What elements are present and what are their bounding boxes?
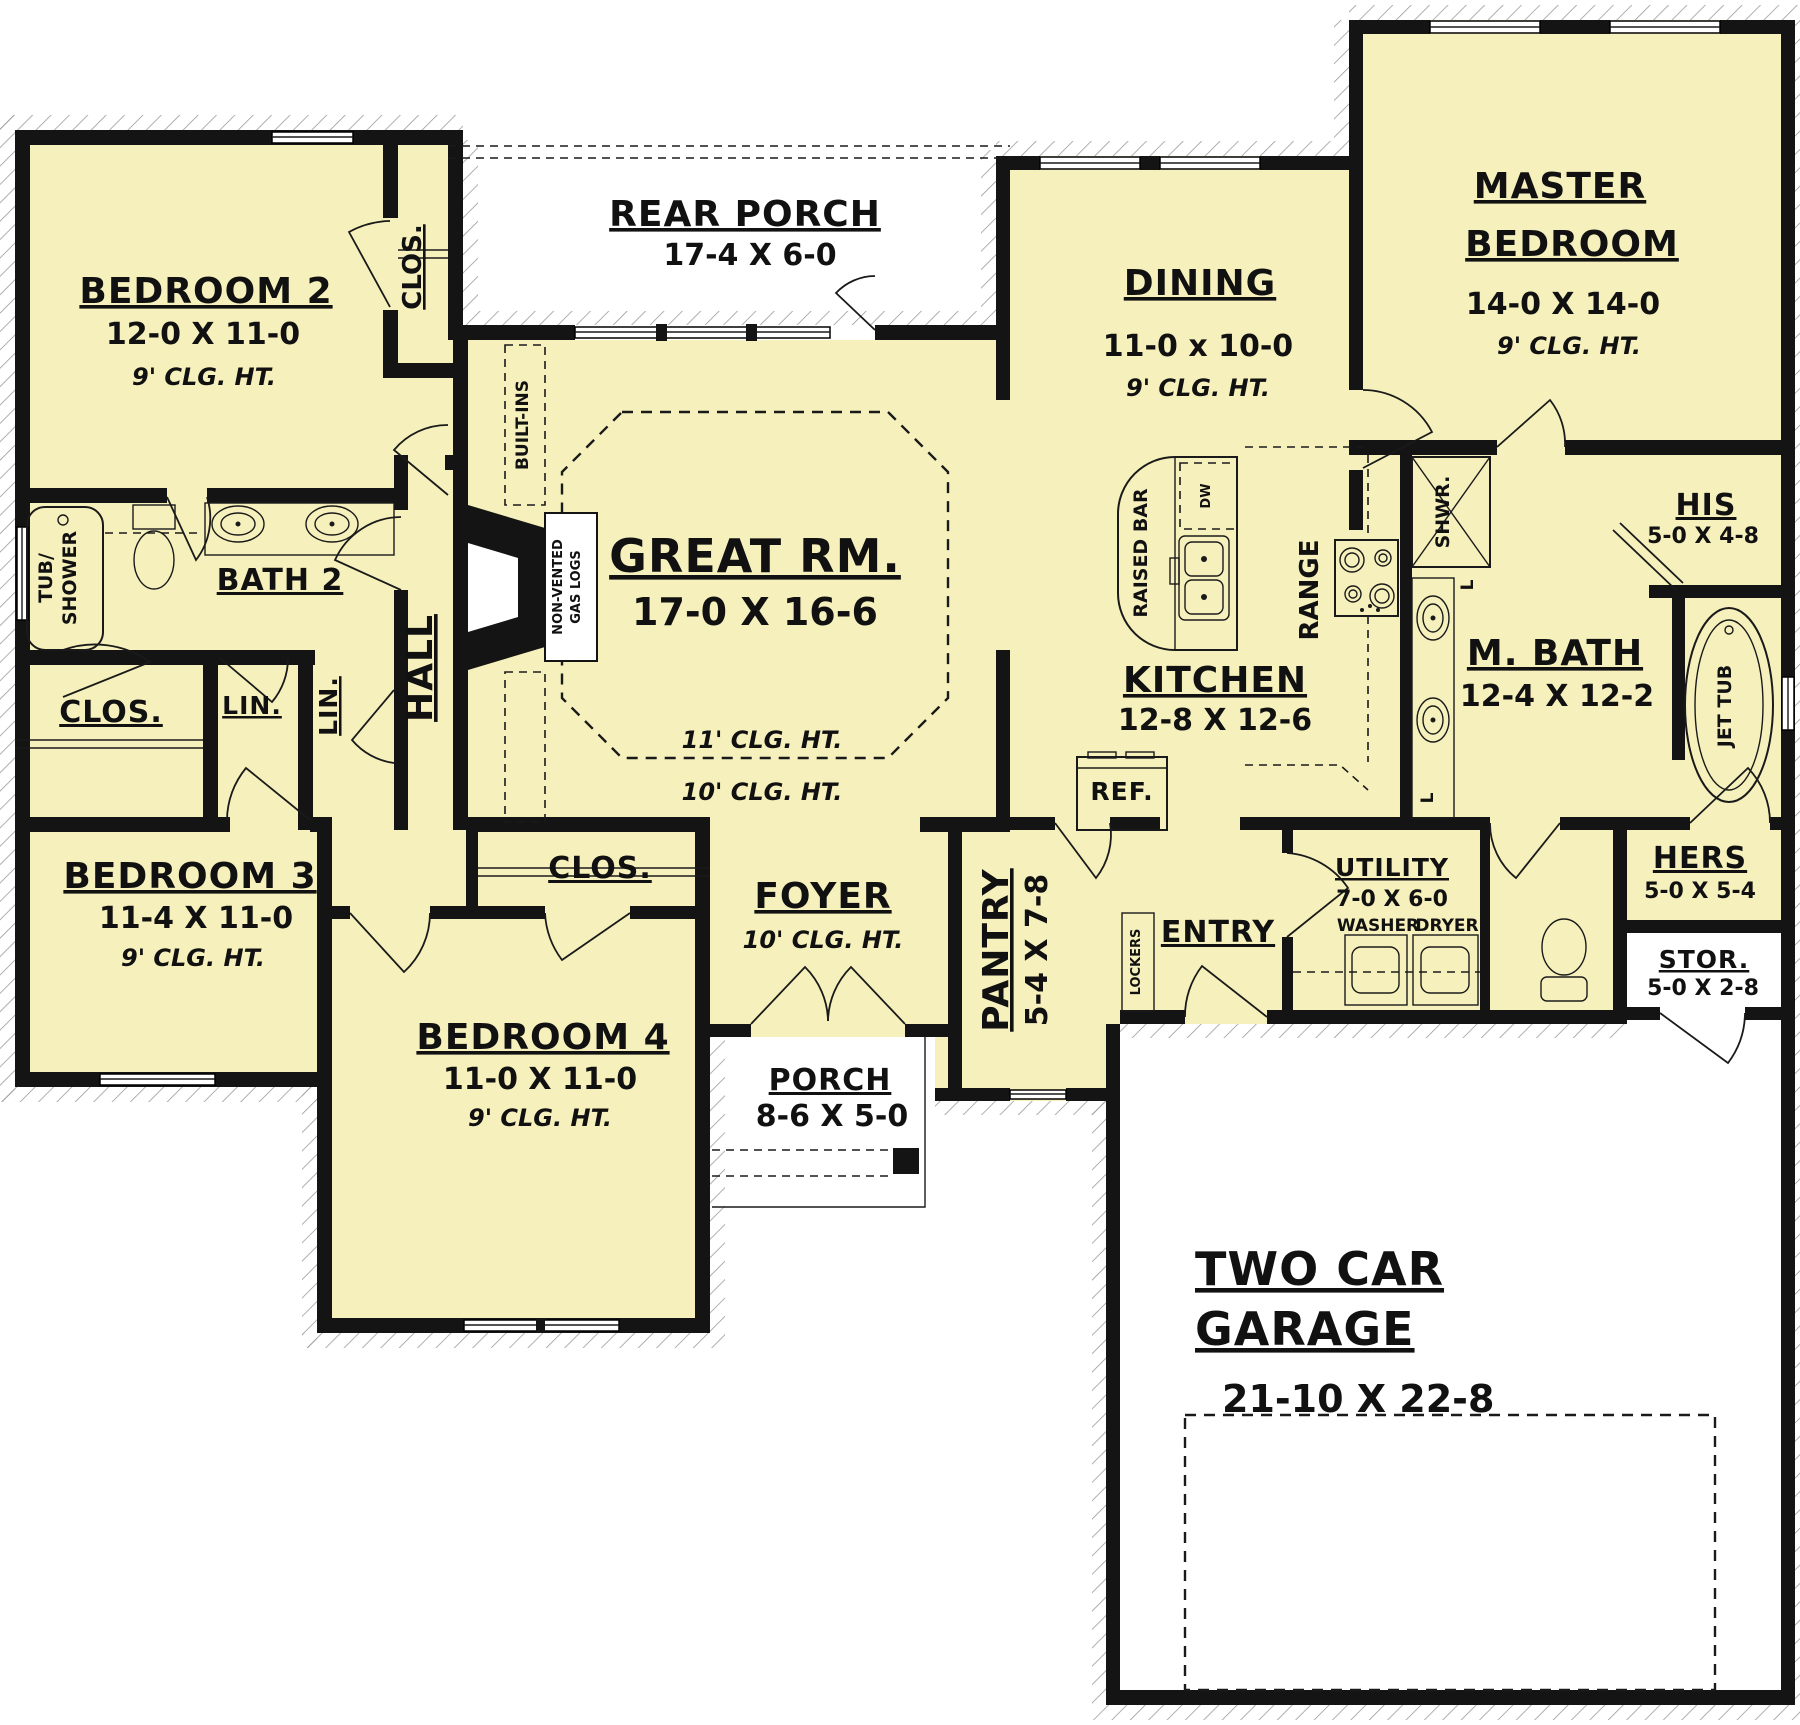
tub-shower-label-2: SHOWER (59, 530, 81, 625)
dining-window-2 (1160, 157, 1260, 169)
storage-door (1660, 1013, 1745, 1063)
entry-label: ENTRY (1161, 915, 1276, 950)
closet1-label: CLOS. (59, 695, 163, 730)
linen1-label: LIN. (222, 691, 282, 720)
master-bath-label: M. BATH (1467, 633, 1643, 674)
jet-tub-label: JET TUB (1714, 665, 1736, 750)
dining-window-1 (1040, 157, 1140, 169)
great-room-label: GREAT RM. (609, 529, 901, 583)
great-room-clg-upper: 11' CLG. HT. (682, 726, 843, 754)
shower-label: SHWR. (1432, 476, 1454, 549)
floor-plan: BEDROOM 2 12-0 X 11-0 9' CLG. HT. CLOS. … (0, 0, 1800, 1725)
kitchen-label: KITCHEN (1123, 660, 1307, 701)
great-room-dims: 17-0 X 16-6 (632, 590, 878, 634)
garage-label-2: GARAGE (1195, 1302, 1415, 1356)
porch-dims: 8-6 X 5-0 (756, 1099, 908, 1134)
linen2-label: LIN. (314, 676, 343, 736)
garage-label-1: TWO CAR (1195, 1242, 1444, 1296)
master-window-1 (1430, 21, 1540, 33)
bedroom4-label: BEDROOM 4 (416, 1017, 669, 1058)
storage-label: STOR. (1659, 945, 1750, 974)
hers-closet-label: HERS (1653, 841, 1747, 876)
master-bath-dims: 12-4 X 12-2 (1460, 679, 1654, 714)
rear-porch-window-strip (575, 324, 830, 341)
rear-porch-label: REAR PORCH (609, 194, 881, 235)
master-label-1: MASTER (1474, 166, 1646, 207)
bedroom3-clg: 9' CLG. HT. (121, 944, 265, 972)
great-room-clg-lower: 10' CLG. HT. (682, 778, 843, 806)
porch-label: PORCH (769, 1063, 892, 1098)
master-label-2: BEDROOM (1465, 224, 1679, 265)
bedroom4-dims: 11-0 X 11-0 (443, 1062, 637, 1097)
dryer-label: DRYER (1415, 916, 1478, 936)
dining-dims: 11-0 x 10-0 (1103, 329, 1293, 364)
room-floors (15, 20, 1795, 1333)
utility-dims: 7-0 X 6-0 (1336, 887, 1448, 912)
dishwasher-label: DW (1199, 483, 1214, 508)
bedroom3-dims: 11-4 X 11-0 (99, 901, 293, 936)
bedroom2-window (272, 132, 353, 143)
dining-label: DINING (1124, 263, 1276, 304)
utility-label: UTILITY (1335, 853, 1449, 882)
gas-logs-label-1: NON-VENTED (551, 539, 566, 635)
pantry-dims: 5-4 X 7-8 (1020, 874, 1055, 1026)
gas-logs-label-2: GAS LOGS (569, 550, 584, 624)
bedroom2-closet-label: CLOS. (398, 224, 428, 309)
range-label: RANGE (1295, 539, 1325, 640)
pantry-window (1010, 1090, 1066, 1099)
bedroom3-window (100, 1074, 215, 1085)
lockers-label: LOCKERS (1129, 929, 1144, 996)
pantry-label: PANTRY (976, 868, 1017, 1031)
bedroom4-clg: 9' CLG. HT. (468, 1104, 612, 1132)
garage-dims: 21-10 X 22-8 (1222, 1377, 1494, 1421)
bath2-label: BATH 2 (217, 563, 344, 598)
master-window-2 (1610, 21, 1720, 33)
his-closet-label: HIS (1676, 488, 1737, 523)
floor-plan-drawing: BEDROOM 2 12-0 X 11-0 9' CLG. HT. CLOS. … (0, 0, 1800, 1725)
master-clg: 9' CLG. HT. (1497, 332, 1641, 360)
master-dims: 14-0 X 14-0 (1466, 287, 1660, 322)
hall-label: HALL (400, 614, 441, 722)
kitchen-dims: 12-8 X 12-6 (1118, 703, 1312, 738)
his-closet-dims: 5-0 X 4-8 (1647, 524, 1759, 549)
bedroom4-closet-label: CLOS. (548, 851, 652, 886)
built-ins-label: BUILT-INS (513, 380, 533, 470)
bedroom2-dims: 12-0 X 11-0 (106, 317, 300, 352)
washer-label: WASHER (1337, 916, 1419, 936)
garage-door-outline (1185, 1415, 1715, 1690)
dining-clg: 9' CLG. HT. (1126, 374, 1270, 402)
jet-tub-window (1782, 677, 1794, 730)
porch-post (893, 1148, 919, 1174)
foyer-clg: 10' CLG. HT. (743, 926, 904, 954)
bedroom3-label: BEDROOM 3 (63, 856, 316, 897)
tub-shower-label-1: TUB/ (35, 553, 57, 603)
linen-cabinet1-label: L (1458, 579, 1478, 590)
foyer-label: FOYER (754, 876, 891, 917)
bedroom2-clg: 9' CLG. HT. (132, 363, 276, 391)
bedroom2-label: BEDROOM 2 (79, 271, 332, 312)
storage-dims: 5-0 X 2-8 (1647, 976, 1759, 1001)
rear-porch-dims: 17-4 X 6-0 (663, 238, 836, 273)
raised-bar-label: RAISED BAR (1130, 488, 1152, 618)
refrigerator-label: REF. (1090, 777, 1153, 806)
hers-closet-dims: 5-0 X 5-4 (1644, 879, 1756, 904)
linen-cabinet2-label: L (1418, 792, 1438, 803)
bedroom4-window (464, 1318, 619, 1333)
